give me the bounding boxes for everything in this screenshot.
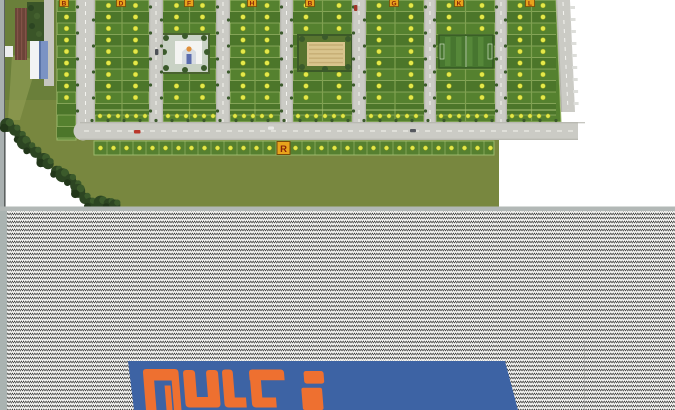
- svg-text:L: L: [528, 0, 532, 7]
- svg-text:D: D: [119, 0, 124, 7]
- svg-text:F: F: [187, 0, 191, 7]
- svg-text:R: R: [280, 144, 287, 155]
- svg-text:B: B: [308, 0, 313, 7]
- svg-text:H: H: [250, 0, 255, 7]
- svg-text:B: B: [62, 0, 67, 7]
- svg-text:G: G: [391, 0, 396, 7]
- svg-text:K: K: [457, 0, 462, 7]
